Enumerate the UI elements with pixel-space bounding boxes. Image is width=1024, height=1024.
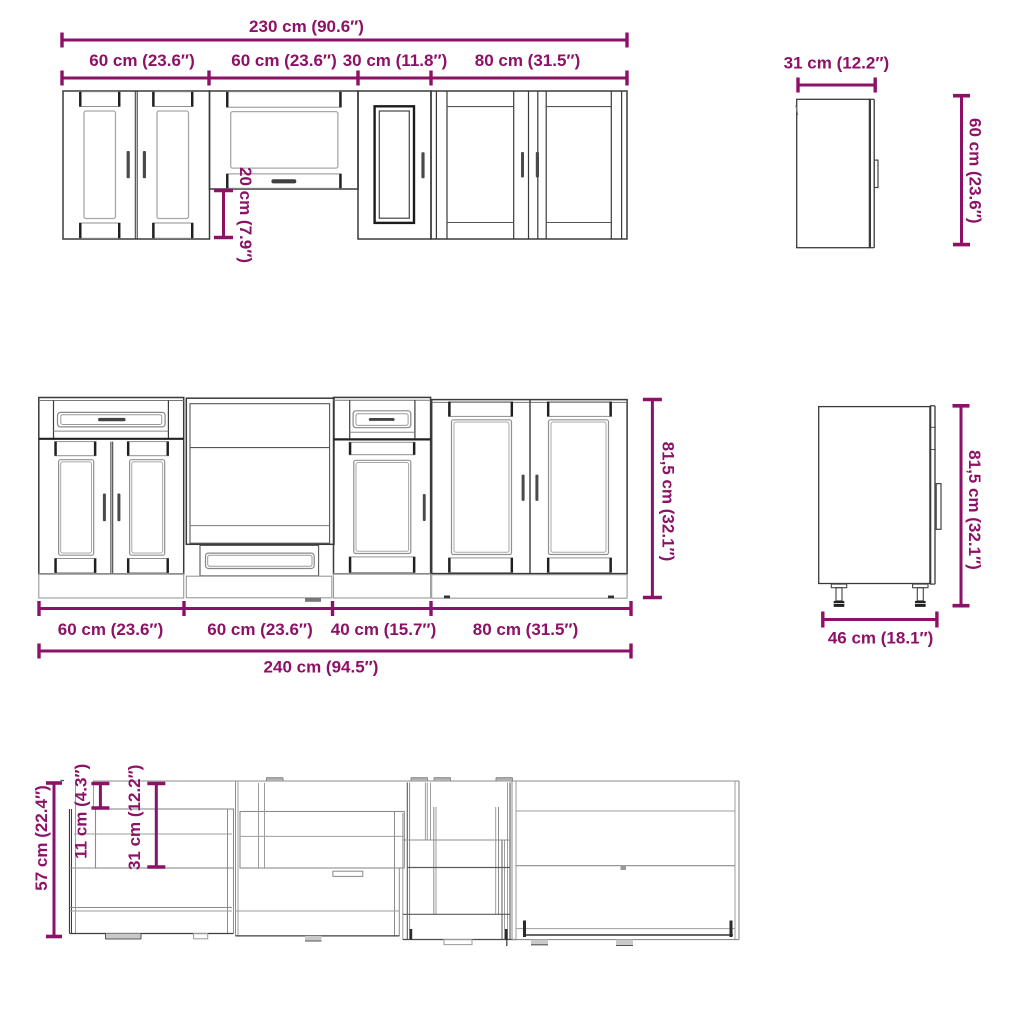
svg-text:60 cm (23.6″): 60 cm (23.6″) [207,620,312,639]
svg-text:11 cm (4.3″): 11 cm (4.3″) [72,764,91,859]
svg-text:80 cm (31.5″): 80 cm (31.5″) [475,51,580,70]
svg-text:46 cm (18.1″): 46 cm (18.1″) [828,629,933,648]
svg-text:60 cm (23.6″): 60 cm (23.6″) [89,51,194,70]
svg-text:60 cm (23.6″): 60 cm (23.6″) [231,51,336,70]
svg-text:30 cm (11.8″): 30 cm (11.8″) [343,51,448,70]
svg-text:20 cm (7.9″): 20 cm (7.9″) [236,167,255,263]
svg-text:81,5 cm (32.1″): 81,5 cm (32.1″) [965,450,984,570]
svg-text:81,5 cm (32.1″): 81,5 cm (32.1″) [659,442,678,562]
svg-text:60 cm (23.6″): 60 cm (23.6″) [966,118,985,223]
svg-text:60 cm (23.6″): 60 cm (23.6″) [58,620,163,639]
svg-text:31 cm (12.2″): 31 cm (12.2″) [784,54,889,73]
svg-text:230 cm (90.6″): 230 cm (90.6″) [249,17,364,36]
svg-text:80 cm (31.5″): 80 cm (31.5″) [473,620,578,639]
svg-text:31 cm (12.2″): 31 cm (12.2″) [125,765,144,870]
svg-text:57 cm (22.4″): 57 cm (22.4″) [32,785,51,890]
svg-text:40 cm (15.7″): 40 cm (15.7″) [331,620,436,639]
svg-text:240 cm (94.5″): 240 cm (94.5″) [264,658,379,677]
